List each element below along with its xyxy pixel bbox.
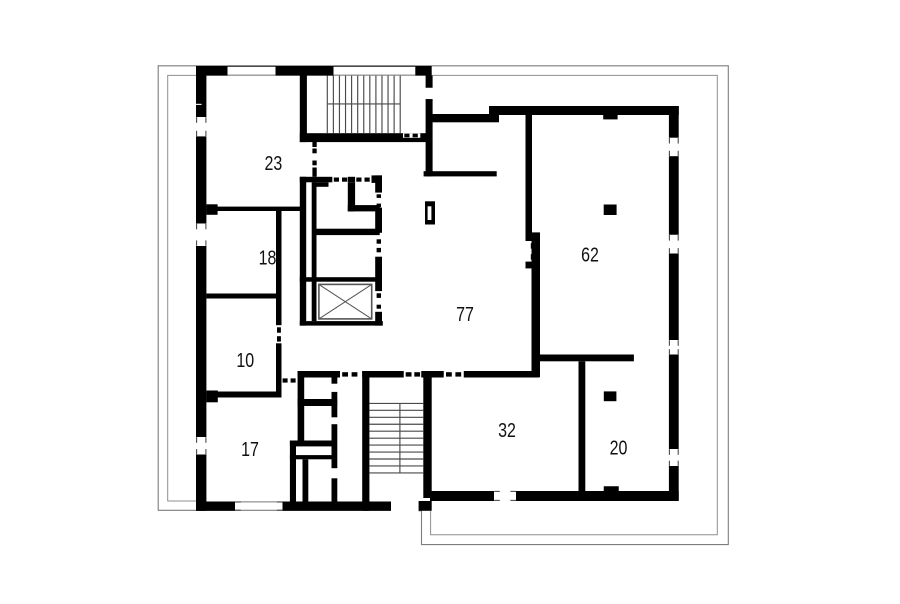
svg-text:23: 23 bbox=[265, 152, 283, 175]
svg-text:62: 62 bbox=[581, 244, 599, 267]
svg-text:32: 32 bbox=[498, 419, 516, 442]
svg-text:17: 17 bbox=[241, 438, 259, 461]
svg-text:77: 77 bbox=[456, 303, 474, 326]
svg-text:10: 10 bbox=[236, 349, 254, 372]
svg-text:20: 20 bbox=[610, 437, 628, 460]
svg-text:18: 18 bbox=[259, 247, 277, 270]
